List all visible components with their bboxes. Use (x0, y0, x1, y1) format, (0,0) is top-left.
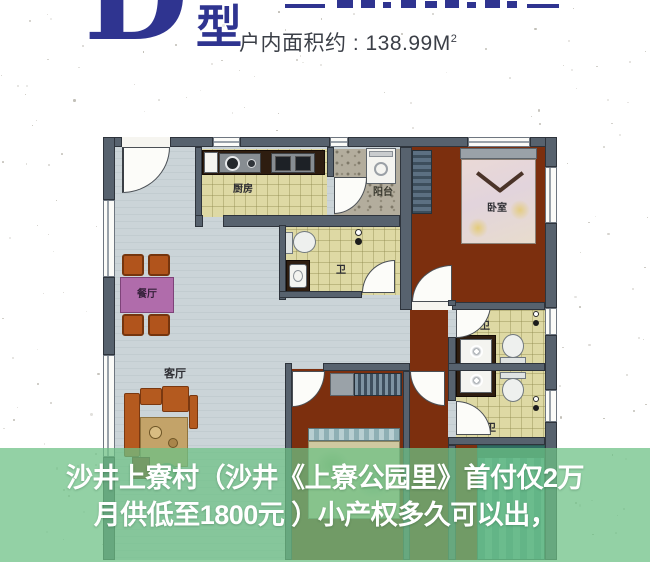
speck-dot (2, 161, 4, 163)
toilet-bowl-icon (293, 231, 316, 253)
light-dot-icon (355, 229, 362, 236)
lamp-glow (468, 218, 488, 238)
wall (448, 363, 545, 371)
bedroom1-door-opening (412, 302, 452, 310)
speck-dot (48, 164, 49, 165)
bed-headboard (460, 148, 537, 159)
speck-dot (644, 267, 646, 269)
bed-headboard (308, 428, 400, 441)
wall (279, 291, 362, 298)
basin-icon (293, 270, 303, 282)
dining-chair (122, 254, 144, 276)
drain-dot-icon (533, 320, 539, 326)
speck-dot (595, 216, 596, 217)
wall (195, 215, 203, 227)
window (468, 137, 530, 147)
tray-icon (149, 426, 162, 439)
window (545, 167, 557, 223)
washer-panel (369, 151, 393, 157)
kitchen-sink (219, 153, 261, 173)
sofa-arm (189, 395, 198, 429)
wall (240, 137, 330, 147)
dining-label: 餐厅 (137, 289, 157, 301)
speck-dot (96, 226, 97, 227)
promo-line1: 沙井上寮村（沙井《上寮公园里》首付仅2万 (66, 460, 584, 497)
header: D 型 户内面积约 : 138.99M2 (0, 0, 650, 130)
drain-dot-icon (355, 238, 362, 245)
blanket-fold-icon (498, 171, 524, 193)
basin-star-icon (470, 374, 483, 387)
speck-dot (50, 402, 52, 404)
wall (223, 215, 400, 227)
toilet-bowl-icon (502, 378, 524, 402)
wall (545, 137, 557, 167)
promo-line2: 月供低至1800元 ）小产权多久可以出， (94, 497, 557, 534)
armchair (162, 386, 189, 412)
flyer-photo: { "header": { "unit_type_letter": "D", "… (0, 0, 650, 550)
entrance-opening (122, 137, 170, 147)
unit-type-suffix: 型 (196, 4, 242, 50)
speck-dot (56, 200, 57, 201)
wall (327, 147, 334, 177)
speck-dot (13, 419, 15, 421)
tray-icon (168, 438, 178, 448)
wall (545, 223, 557, 308)
speck-dot (97, 373, 99, 375)
speck-dot (562, 347, 564, 349)
window (103, 355, 115, 457)
speck-dot (9, 237, 11, 239)
wall (448, 300, 456, 306)
speck-dot (37, 383, 39, 385)
speck-dot (48, 234, 49, 235)
kitchen-label: 厨房 (223, 184, 263, 196)
speck-dot (37, 225, 38, 226)
wardrobe-cap (330, 373, 354, 396)
window (545, 308, 557, 335)
speck-dot (579, 306, 581, 308)
speck-dot (645, 404, 647, 406)
wall (400, 147, 412, 310)
sink-tap-icon (247, 159, 256, 168)
wall (323, 363, 410, 371)
washer-door-icon (374, 162, 388, 176)
speck-dot (626, 374, 627, 375)
kitchen-stove (271, 153, 315, 173)
speck-dot (559, 385, 561, 387)
cropped-title-fragments (285, 0, 565, 9)
speck-dot (603, 146, 605, 148)
sofa-seat (140, 388, 162, 405)
basin-star-icon (470, 345, 483, 358)
dining-chair (148, 314, 170, 336)
speck-dot (44, 443, 46, 445)
toilet-bowl-icon (502, 334, 524, 358)
speck-dot (86, 311, 87, 312)
unit-type-letter: D (84, 0, 188, 58)
sink-basin-icon (225, 156, 240, 171)
speck-dot (2, 318, 4, 320)
bed (461, 159, 536, 244)
wardrobe (354, 373, 402, 396)
window (213, 137, 240, 147)
speck-dot (603, 418, 605, 420)
speck-dot (3, 428, 5, 430)
dining-chair (122, 314, 144, 336)
dining-table: 餐厅 (120, 277, 174, 313)
speck-dot (61, 153, 63, 155)
bedroom-label: 卧室 (475, 203, 519, 215)
stove-burner-icon (275, 156, 291, 171)
bathroom-sink-icon (289, 264, 307, 288)
wall (279, 225, 286, 300)
wall (545, 335, 557, 390)
stove-burner-icon (295, 156, 311, 171)
speck-dot (43, 293, 44, 294)
light-dot-icon (533, 396, 539, 402)
light-dot-icon (533, 311, 539, 317)
promo-banner: 沙井上寮村（沙井《上寮公园里》首付仅2万 月供低至1800元 ）小产权多久可以出… (0, 448, 650, 562)
wall (348, 137, 468, 147)
speck-dot (37, 349, 38, 350)
kitchen-cabinet (204, 152, 218, 173)
speck-dot (574, 296, 576, 298)
speck-dot (276, 130, 277, 131)
window (545, 390, 557, 422)
speck-dot (588, 222, 590, 224)
speck-dot (588, 344, 591, 347)
speck-dot (619, 134, 621, 136)
bathroom-sink-icon (460, 339, 492, 364)
dining-chair (148, 254, 170, 276)
wall (103, 137, 115, 200)
wall (170, 137, 213, 147)
balcony-label: 阳台 (366, 187, 400, 199)
wall (448, 437, 545, 445)
speck-dot (53, 251, 54, 252)
speck-dot (607, 233, 609, 235)
speck-dot (567, 163, 568, 164)
wall (452, 302, 545, 310)
wardrobe (412, 150, 432, 214)
drain-dot-icon (533, 405, 539, 411)
speck-dot (633, 410, 635, 412)
bathroom-sink-icon (460, 368, 492, 393)
speck-dot (90, 413, 92, 415)
speck-dot (643, 339, 644, 340)
speck-dot (580, 252, 581, 253)
speck-dot (632, 288, 634, 290)
speck-dot (17, 407, 18, 408)
unit-area-text: 户内面积约 : 138.99M2 (239, 27, 457, 57)
speck-dot (12, 357, 14, 359)
washing-machine-icon (366, 148, 396, 184)
area-superscript: 2 (451, 33, 458, 45)
window (330, 137, 348, 147)
living-label: 客厅 (153, 368, 197, 380)
area-value: 户内面积约 : 138.99M (239, 32, 451, 55)
speck-dot (560, 416, 562, 418)
bathroom1-label: 卫 (331, 265, 351, 277)
wall (103, 277, 115, 355)
speck-dot (638, 337, 640, 339)
speck-dot (26, 163, 27, 164)
speck-dot (63, 292, 64, 293)
speck-dot (647, 217, 648, 218)
window (103, 200, 115, 277)
